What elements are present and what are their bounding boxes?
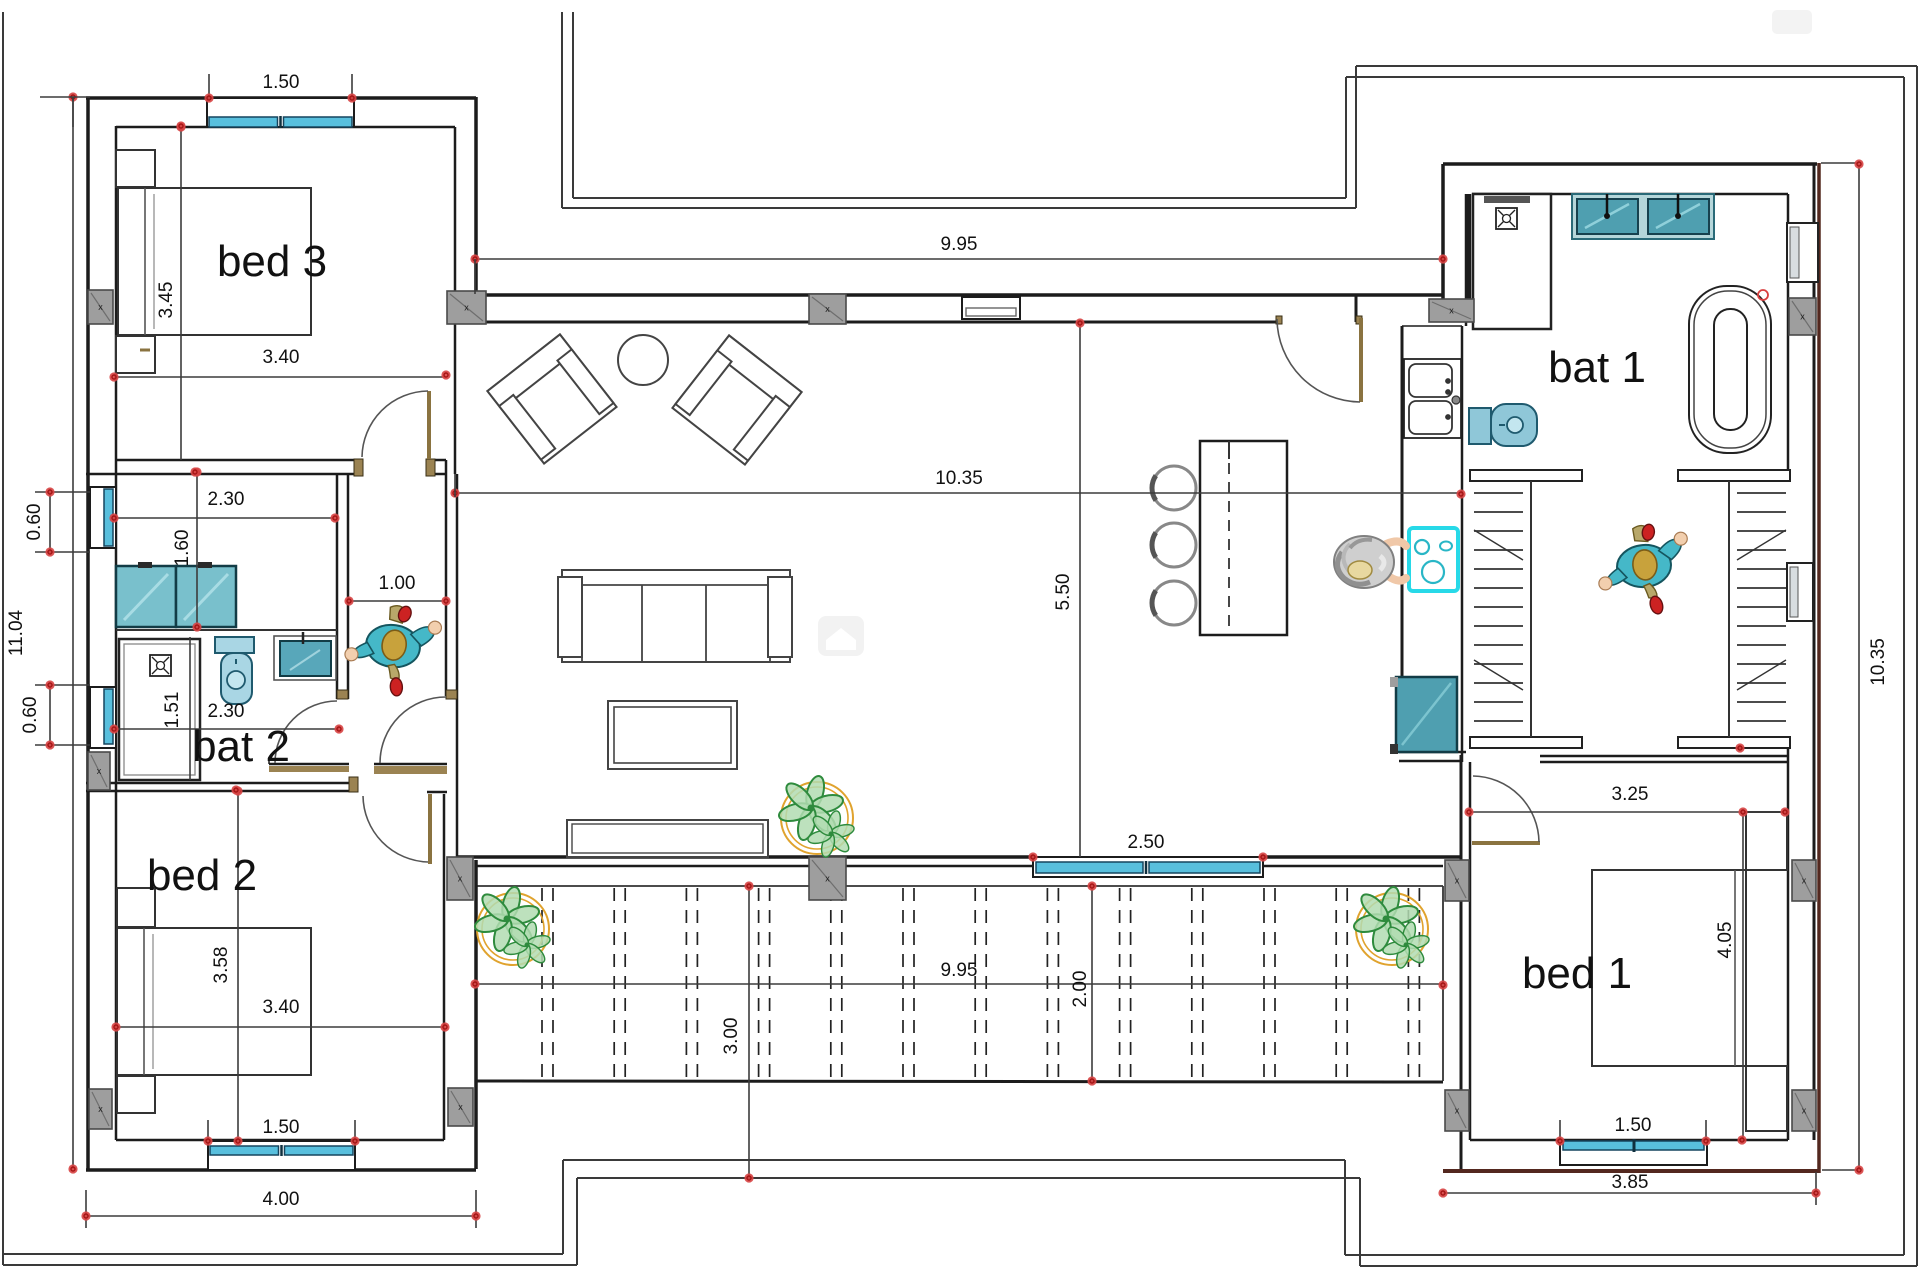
svg-text:x: x: [97, 766, 102, 776]
svg-text:3.40: 3.40: [263, 347, 300, 368]
svg-text:bed 2: bed 2: [147, 851, 257, 900]
svg-text:x: x: [458, 874, 463, 884]
svg-text:3.00: 3.00: [721, 1018, 742, 1055]
svg-text:2.00: 2.00: [1070, 971, 1091, 1008]
svg-text:11.04: 11.04: [6, 610, 27, 657]
svg-text:x: x: [1802, 1106, 1807, 1116]
svg-text:1.00: 1.00: [379, 573, 416, 594]
svg-text:1.50: 1.50: [1615, 1115, 1652, 1136]
svg-text:x: x: [1802, 876, 1807, 886]
svg-text:2.50: 2.50: [1128, 832, 1165, 853]
svg-text:0.60: 0.60: [24, 504, 45, 541]
svg-text:2.30: 2.30: [208, 489, 245, 510]
svg-text:3.25: 3.25: [1612, 784, 1649, 805]
svg-text:x: x: [458, 1102, 463, 1112]
svg-text:1.51: 1.51: [162, 692, 183, 729]
svg-text:x: x: [1455, 1106, 1460, 1116]
svg-text:3.45: 3.45: [156, 282, 177, 319]
svg-text:1.50: 1.50: [263, 72, 300, 93]
svg-text:x: x: [464, 303, 469, 313]
svg-text:bed 1: bed 1: [1522, 949, 1632, 998]
svg-text:4.00: 4.00: [263, 1189, 300, 1210]
svg-text:x: x: [825, 304, 830, 314]
svg-text:3.58: 3.58: [211, 947, 232, 984]
svg-text:1.50: 1.50: [263, 1117, 300, 1138]
svg-text:4.05: 4.05: [1715, 922, 1736, 959]
svg-text:3.40: 3.40: [263, 997, 300, 1018]
svg-text:3.85: 3.85: [1612, 1172, 1649, 1193]
svg-text:x: x: [1449, 306, 1454, 316]
svg-text:10.35: 10.35: [935, 468, 983, 489]
svg-text:10.35: 10.35: [1868, 638, 1889, 686]
svg-text:9.95: 9.95: [941, 234, 978, 255]
svg-text:1.60: 1.60: [172, 530, 193, 567]
svg-text:x: x: [98, 1104, 103, 1114]
svg-text:x: x: [1455, 876, 1460, 886]
svg-text:bed 3: bed 3: [217, 237, 327, 286]
svg-text:bat 1: bat 1: [1548, 343, 1646, 392]
svg-text:x: x: [98, 302, 103, 312]
svg-text:x: x: [825, 874, 830, 884]
svg-text:9.95: 9.95: [941, 960, 978, 981]
svg-text:0.60: 0.60: [20, 697, 41, 734]
svg-text:bat 2: bat 2: [192, 722, 290, 771]
svg-text:5.50: 5.50: [1053, 574, 1074, 611]
svg-text:2.30: 2.30: [208, 701, 245, 722]
svg-text:x: x: [1800, 312, 1805, 322]
